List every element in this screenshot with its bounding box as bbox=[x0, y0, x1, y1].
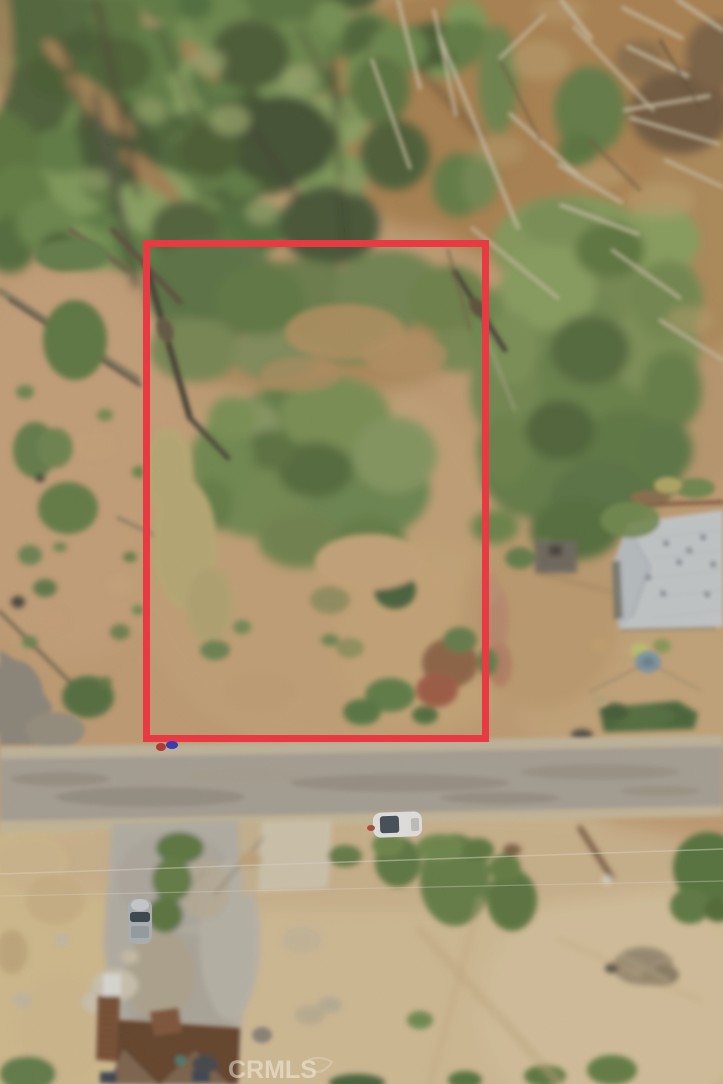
svg-text:CRMLS: CRMLS bbox=[228, 1056, 317, 1084]
